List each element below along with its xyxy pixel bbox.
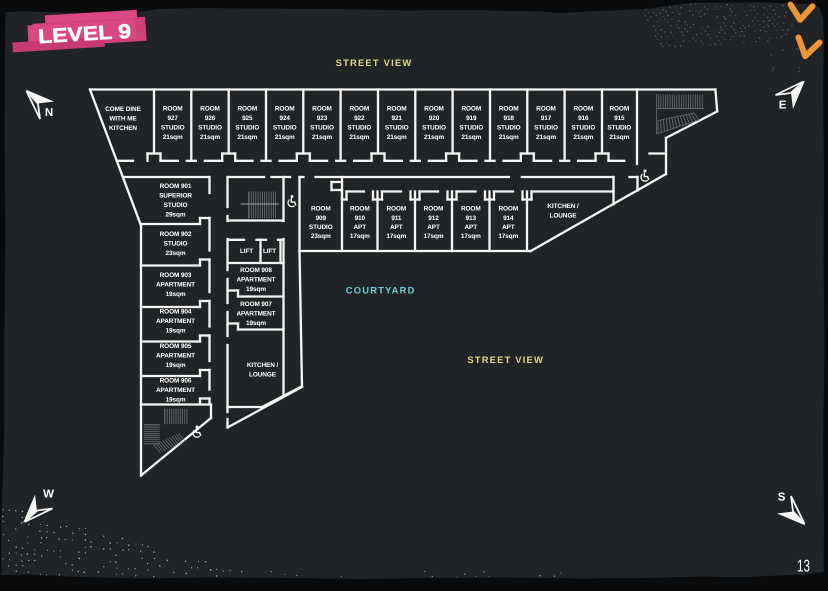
svg-text:STUDIO: STUDIO — [309, 224, 333, 231]
svg-text:ROOM: ROOM — [312, 106, 332, 113]
svg-text:17sqm: 17sqm — [386, 233, 406, 240]
svg-text:E: E — [779, 99, 787, 111]
svg-text:17sqm: 17sqm — [461, 233, 481, 240]
svg-text:910: 910 — [355, 215, 366, 222]
svg-text:ROOM: ROOM — [536, 106, 556, 113]
svg-text:911: 911 — [391, 215, 402, 222]
svg-text:STUDIO: STUDIO — [273, 125, 297, 132]
svg-text:STUDIO: STUDIO — [164, 202, 188, 209]
svg-text:23sqm: 23sqm — [166, 250, 186, 257]
svg-text:ROOM: ROOM — [461, 106, 481, 113]
svg-text:19sqm: 19sqm — [166, 291, 186, 298]
svg-text:STUDIO: STUDIO — [385, 125, 409, 132]
svg-text:ROOM: ROOM — [609, 106, 629, 113]
svg-text:ROOM: ROOM — [349, 106, 369, 113]
svg-text:COME DINE: COME DINE — [105, 106, 141, 113]
svg-text:STUDIO: STUDIO — [571, 125, 595, 132]
svg-text:917: 917 — [541, 115, 552, 122]
svg-text:STREET VIEW: STREET VIEW — [467, 354, 544, 365]
svg-text:STUDIO: STUDIO — [198, 125, 222, 132]
svg-text:APARTMENT: APARTMENT — [236, 311, 275, 318]
svg-text:APARTMENT: APARTMENT — [236, 277, 275, 284]
svg-text:ROOM 908: ROOM 908 — [240, 267, 272, 274]
svg-text:ROOM 907: ROOM 907 — [240, 301, 272, 308]
svg-text:STUDIO: STUDIO — [607, 125, 631, 132]
svg-text:STUDIO: STUDIO — [347, 125, 371, 132]
svg-text:21sqm: 21sqm — [573, 134, 593, 141]
svg-text:APARTMENT: APARTMENT — [156, 318, 195, 325]
svg-text:ROOM: ROOM — [200, 106, 220, 113]
svg-text:SUPERIOR: SUPERIOR — [159, 193, 192, 200]
svg-text:STUDIO: STUDIO — [497, 125, 521, 132]
svg-text:STUDIO: STUDIO — [422, 125, 446, 132]
svg-text:912: 912 — [428, 215, 439, 222]
svg-text:ROOM 903: ROOM 903 — [160, 272, 192, 279]
svg-text:29sqm: 29sqm — [166, 212, 186, 219]
svg-text:W: W — [43, 488, 54, 500]
svg-text:APARTMENT: APARTMENT — [156, 387, 195, 394]
svg-text:APT: APT — [502, 224, 515, 231]
svg-text:STUDIO: STUDIO — [534, 125, 558, 132]
svg-text:21sqm: 21sqm — [312, 134, 332, 141]
svg-text:19sqm: 19sqm — [246, 286, 266, 293]
svg-text:925: 925 — [242, 115, 253, 122]
svg-text:909: 909 — [316, 215, 327, 222]
svg-text:ROOM: ROOM — [275, 106, 295, 113]
svg-text:COURTYARD: COURTYARD — [346, 284, 416, 295]
svg-text:13: 13 — [797, 557, 810, 576]
svg-text:ROOM: ROOM — [461, 206, 481, 213]
svg-text:ROOM: ROOM — [237, 106, 257, 113]
svg-text:ROOM: ROOM — [387, 106, 407, 113]
svg-text:ROOM 904: ROOM 904 — [160, 309, 192, 316]
svg-text:19sqm: 19sqm — [246, 320, 266, 327]
svg-text:914: 914 — [503, 215, 514, 222]
svg-text:916: 916 — [578, 115, 589, 122]
svg-text:STREET VIEW: STREET VIEW — [336, 57, 413, 68]
svg-text:ROOM: ROOM — [499, 106, 519, 113]
svg-text:21sqm: 21sqm — [499, 134, 519, 141]
svg-text:N: N — [45, 107, 53, 119]
svg-text:S: S — [778, 491, 786, 503]
svg-text:ROOM 906: ROOM 906 — [160, 378, 192, 385]
svg-text:LIFT: LIFT — [240, 248, 253, 255]
svg-text:23sqm: 23sqm — [311, 233, 331, 240]
svg-text:ROOM 902: ROOM 902 — [160, 231, 192, 238]
svg-text:21sqm: 21sqm — [424, 134, 444, 141]
svg-text:APT: APT — [390, 224, 403, 231]
svg-text:APT: APT — [465, 224, 478, 231]
svg-text:21sqm: 21sqm — [536, 134, 556, 141]
svg-text:923: 923 — [317, 115, 328, 122]
svg-text:913: 913 — [466, 215, 477, 222]
svg-text:LOUNGE: LOUNGE — [249, 372, 277, 379]
svg-text:21sqm: 21sqm — [461, 134, 481, 141]
svg-text:LOUNGE: LOUNGE — [550, 213, 578, 220]
svg-text:21sqm: 21sqm — [349, 134, 369, 141]
svg-text:ROOM 901: ROOM 901 — [160, 183, 192, 190]
svg-text:19sqm: 19sqm — [166, 362, 186, 369]
svg-text:21sqm: 21sqm — [609, 134, 629, 141]
svg-text:19sqm: 19sqm — [166, 397, 186, 404]
svg-text:WITH ME: WITH ME — [109, 115, 137, 122]
svg-text:ROOM: ROOM — [424, 106, 444, 113]
svg-text:ROOM: ROOM — [163, 106, 183, 113]
svg-text:ROOM: ROOM — [498, 206, 518, 213]
svg-text:STUDIO: STUDIO — [310, 125, 334, 132]
svg-text:ROOM: ROOM — [311, 206, 331, 213]
svg-text:927: 927 — [167, 115, 178, 122]
svg-text:KITCHEN: KITCHEN — [109, 125, 137, 132]
svg-text:ROOM: ROOM — [573, 106, 593, 113]
svg-text:ROOM: ROOM — [350, 206, 370, 213]
svg-text:17sqm: 17sqm — [350, 233, 370, 240]
svg-text:21sqm: 21sqm — [237, 134, 257, 141]
svg-text:921: 921 — [391, 115, 402, 122]
svg-text:926: 926 — [205, 115, 216, 122]
svg-text:915: 915 — [614, 115, 625, 122]
svg-text:19sqm: 19sqm — [166, 328, 186, 335]
svg-text:LIFT: LIFT — [263, 248, 276, 255]
svg-text:922: 922 — [354, 115, 365, 122]
svg-text:21sqm: 21sqm — [163, 134, 183, 141]
svg-text:STUDIO: STUDIO — [164, 241, 188, 248]
svg-text:APARTMENT: APARTMENT — [156, 282, 195, 289]
svg-text:21sqm: 21sqm — [275, 134, 295, 141]
svg-text:STUDIO: STUDIO — [459, 125, 483, 132]
svg-text:STUDIO: STUDIO — [235, 125, 259, 132]
svg-text:21sqm: 21sqm — [200, 134, 220, 141]
svg-text:APARTMENT: APARTMENT — [156, 353, 195, 360]
svg-text:ROOM 905: ROOM 905 — [160, 343, 192, 350]
svg-text:APT: APT — [354, 224, 367, 231]
svg-text:924: 924 — [279, 115, 290, 122]
svg-text:KITCHEN /: KITCHEN / — [247, 362, 279, 369]
svg-text:920: 920 — [429, 115, 440, 122]
svg-text:17sqm: 17sqm — [498, 233, 518, 240]
svg-text:17sqm: 17sqm — [424, 233, 444, 240]
svg-text:ROOM: ROOM — [424, 206, 444, 213]
svg-text:ROOM: ROOM — [386, 206, 406, 213]
svg-text:21sqm: 21sqm — [387, 134, 407, 141]
svg-text:918: 918 — [503, 115, 514, 122]
svg-text:KITCHEN /: KITCHEN / — [547, 203, 579, 210]
svg-text:APT: APT — [427, 224, 440, 231]
svg-text:919: 919 — [466, 115, 477, 122]
svg-text:STUDIO: STUDIO — [161, 125, 185, 132]
